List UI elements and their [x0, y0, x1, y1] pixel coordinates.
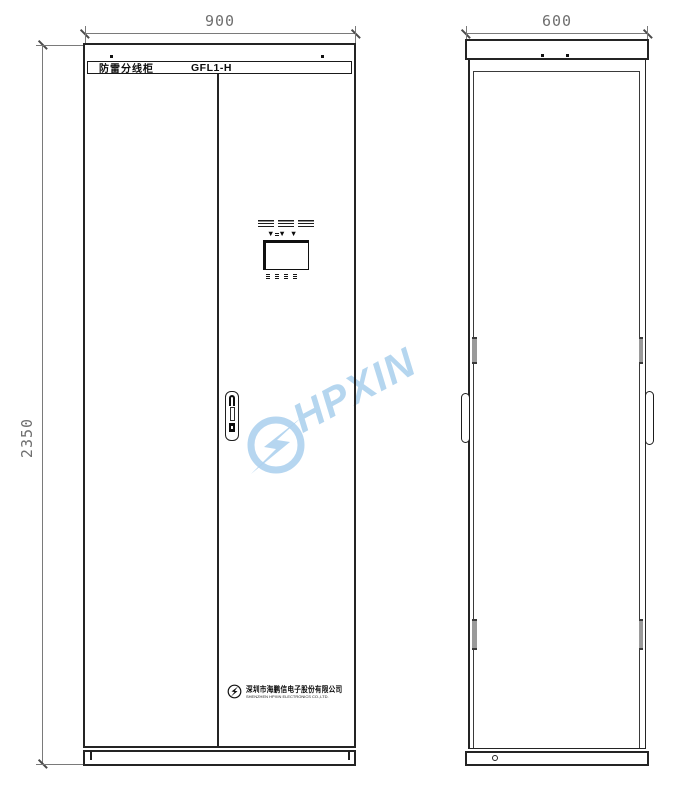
- dim-ext-line: [355, 26, 356, 43]
- cabinet-model-label: GFL1-H: [191, 62, 232, 74]
- dim-side-width-line: [466, 33, 648, 34]
- side-body-bottom-edge: [468, 748, 646, 749]
- dim-ext-line: [36, 45, 83, 46]
- display-window: [263, 240, 309, 270]
- front-title-plate: 防雷分线柜 GFL1-H: [87, 61, 352, 74]
- front-view-cabinet-outline: [83, 43, 356, 748]
- side-hinge-mark: [472, 337, 477, 364]
- front-base-plinth: [83, 750, 356, 766]
- handle-grip-icon: [229, 395, 235, 406]
- handle-slot: [230, 407, 235, 421]
- company-name-cn: 深圳市海鹏信电子股份有限公司: [246, 684, 346, 695]
- side-hinge-mark: [639, 337, 644, 364]
- dim-ext-line: [647, 26, 648, 39]
- plinth-hole-icon: [492, 755, 498, 761]
- dim-front-width-label: 900: [185, 12, 255, 30]
- side-top-screw-dot: [541, 54, 544, 57]
- dim-ext-line: [85, 26, 86, 43]
- plinth-notch: [90, 751, 92, 760]
- plinth-notch: [348, 751, 350, 760]
- display-panel: ▼▼▼: [256, 219, 320, 285]
- indicator-label-marks: [278, 219, 294, 227]
- panel-button-mark: [293, 274, 297, 279]
- cabinet-name-label: 防雷分线柜: [99, 60, 154, 75]
- company-name-en: SHENZHEN HPXIN ELECTRONICS CO.,LTD.: [246, 695, 342, 700]
- dim-front-width-line: [85, 33, 356, 34]
- panel-button-mark: [275, 274, 279, 279]
- front-top-screw-dot: [110, 55, 113, 58]
- side-panel-inner-outline: [473, 71, 640, 749]
- panel-button-mark: [266, 274, 270, 279]
- side-top-screw-dot: [566, 54, 569, 57]
- dim-ext-line: [36, 764, 83, 765]
- lock-cylinder-icon: [229, 423, 236, 432]
- dim-height-line: [42, 45, 43, 764]
- dim-ext-line: [466, 26, 467, 39]
- company-brand-block: 深圳市海鹏信电子股份有限公司 SHENZHEN HPXIN ELECTRONIC…: [227, 684, 366, 701]
- side-view-top-panel: [465, 39, 649, 60]
- dim-side-width-label: 600: [522, 12, 592, 30]
- indicator-label-marks: [298, 219, 314, 227]
- indicator-triangles-icon: ▼▼▼: [267, 230, 301, 237]
- dim-height-label: 2350: [18, 403, 36, 473]
- side-right-hinge-icon: [645, 391, 654, 445]
- front-door-split-line: [217, 74, 219, 748]
- side-hinge-mark: [639, 619, 644, 650]
- company-logo-icon: [227, 684, 242, 699]
- door-handle-lock: [225, 391, 239, 441]
- side-hinge-mark: [472, 619, 477, 650]
- technical-drawing-canvas: HPXIN 900 600 2350 防雷分线柜 GFL1-H ▼▼▼: [0, 0, 693, 811]
- indicator-mark: [275, 232, 279, 236]
- side-left-hinge-icon: [461, 393, 470, 443]
- front-top-screw-dot: [321, 55, 324, 58]
- panel-button-mark: [284, 274, 288, 279]
- indicator-label-marks: [258, 219, 274, 227]
